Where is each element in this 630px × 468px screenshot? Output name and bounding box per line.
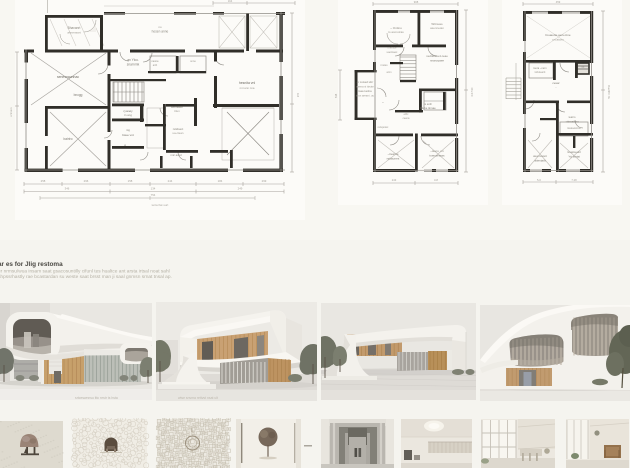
svg-text:hesnita vnl: hesnita vnl	[239, 81, 255, 85]
svg-text:'-ttt tstrtat: '-ttt tstrtat	[568, 155, 580, 159]
svg-text:164: 164	[228, 0, 233, 3]
svg-text:548: 548	[334, 93, 338, 98]
svg-text:rsuattseatrt: rsuattseatrt	[567, 150, 581, 154]
svg-text:asena si tteute: asena si tteute	[356, 85, 374, 89]
svg-text:tsera ~nern: tsera ~nern	[533, 66, 547, 70]
svg-text:bairtro: bairtro	[63, 137, 72, 141]
svg-text:retspotec: retspotec	[378, 125, 389, 129]
svg-text:tstfuteartt: tstfuteartt	[535, 70, 546, 74]
svg-text:attestattt: attestattt	[534, 159, 545, 163]
svg-text:senesnaunnac: senesnaunnac	[57, 75, 79, 79]
svg-text:258: 258	[41, 179, 46, 183]
svg-text:no: no	[158, 25, 162, 29]
svg-text:bsue vnt: bsue vnt	[122, 133, 134, 137]
svg-text:296: 296	[84, 179, 89, 183]
svg-text:~tteatrte: ~tteatrte	[387, 152, 398, 156]
svg-text:Bhavanrt: Bhavanrt	[68, 26, 81, 30]
svg-text:bnogg: bnogg	[74, 93, 83, 97]
svg-text:ntg: ntg	[126, 128, 130, 132]
svg-text:w: w	[124, 144, 126, 147]
svg-text:9-8: 9-8	[296, 93, 300, 97]
svg-text:346: 346	[65, 187, 70, 191]
svg-text:atea testett: atea testett	[533, 154, 547, 158]
svg-text:nedtastca-tt-teae: nedtastca-tt-teae	[426, 54, 448, 58]
svg-text:teun aeravt .uu: teun aeravt .uu	[356, 94, 374, 98]
svg-text:908: 908	[414, 0, 419, 4]
svg-text:+tteeataeu: +tteeataeu	[565, 120, 579, 124]
svg-text:er nrmsu/wua insam saat gsacos: er nrmsu/wua insam saat gsacosuntilly ci…	[0, 269, 170, 275]
svg-text:tnt: tnt	[582, 66, 585, 69]
svg-text:rnetnue: rnetnue	[388, 46, 397, 50]
svg-text:arth: arth	[153, 63, 158, 67]
svg-text:5-6: 5-6	[537, 178, 541, 182]
svg-text:nnaroyaee: nnaroyaee	[430, 59, 445, 63]
svg-text:bsuaotte.aeru-ttne: bsuaotte.aeru-ttne	[545, 33, 570, 37]
svg-text:asenneian: asenneian	[430, 26, 444, 30]
svg-text:243: 243	[392, 178, 397, 182]
svg-text:~teeru .nn: ~teeru .nn	[430, 149, 444, 153]
svg-text:urt.atceu: urt.atceu	[552, 38, 564, 42]
svg-text:Dra ttrtl: Dra ttrtl	[470, 88, 474, 97]
svg-text:nevne: nevne	[151, 60, 159, 63]
svg-text:nnt ann nna: nnt ann nna	[240, 86, 255, 90]
svg-text:or cutsed sttrr: or cutsed sttrr	[357, 80, 374, 84]
svg-text:ua-ctean: ua-ctean	[173, 131, 184, 135]
svg-text:ethc: ethc	[404, 113, 409, 116]
svg-text:arnn: arnn	[386, 71, 392, 74]
svg-text:244: 244	[168, 179, 173, 183]
svg-text:7.28: 7.28	[571, 178, 577, 182]
svg-text:ar es for Jlig restoma: ar es for Jlig restoma	[0, 261, 63, 268]
svg-text:tttun: tttun	[174, 109, 180, 113]
svg-text:158: 158	[128, 179, 133, 183]
svg-text:...: ...	[555, 86, 557, 89]
svg-text:btube tinnae: btube tinnae	[420, 106, 436, 110]
svg-text:ts asmutras: ts asmutras	[388, 30, 404, 34]
svg-text:249: 249	[238, 187, 243, 191]
svg-text:754: 754	[151, 193, 156, 197]
svg-text:uaotnaec: uaotnaec	[387, 50, 398, 54]
svg-text:ceena: ceena	[403, 117, 410, 120]
svg-text:184: 184	[218, 179, 223, 183]
svg-text:shpssrhastly rae bcastardan su: shpssrhastly rae bcastardan su weste saa…	[0, 274, 172, 280]
svg-text:snarnrnk: snarnrnk	[127, 63, 140, 67]
svg-text:rnsteo: rnsteo	[380, 63, 388, 67]
svg-text:srtceswnnsu ittc restr ts hst: srtceswnnsu ittc restr ts hsta	[75, 396, 118, 400]
svg-text:299: 299	[262, 179, 267, 183]
svg-text:tteataosttne: tteataosttne	[567, 126, 581, 130]
svg-text:mtc acsd: mtc acsd	[170, 153, 182, 157]
svg-text:134: 134	[151, 187, 156, 191]
svg-text:Duettftt t tts: Duettftt t tts	[607, 85, 611, 99]
svg-text:cesar: cesar	[552, 81, 559, 85]
svg-text:wtse snvma rettvst nsat ult: wtse snvma rettvst nsat ult	[178, 396, 218, 400]
svg-text:rsttaunes: rsttaunes	[387, 157, 400, 161]
svg-text:an Ylcu.: an Ylcu.	[127, 58, 139, 62]
svg-text:3-8: 3-8	[434, 178, 438, 182]
svg-text:teatro: teatro	[569, 115, 576, 119]
svg-text:tsenaeteas: tsenaeteas	[429, 154, 445, 158]
svg-text:ahnensart: ahnensart	[67, 31, 81, 35]
svg-text:459: 459	[556, 0, 561, 4]
svg-text:snne: snne	[190, 60, 196, 63]
svg-text:tsaa tuolna: tsaa tuolna	[358, 89, 372, 93]
svg-text:hosen anne: hosen anne	[152, 30, 169, 34]
svg-text:tn ang: tn ang	[124, 113, 132, 117]
svg-text:terta fiat surt: terta fiat surt	[152, 203, 169, 207]
svg-text:entnam: entnam	[9, 107, 13, 117]
